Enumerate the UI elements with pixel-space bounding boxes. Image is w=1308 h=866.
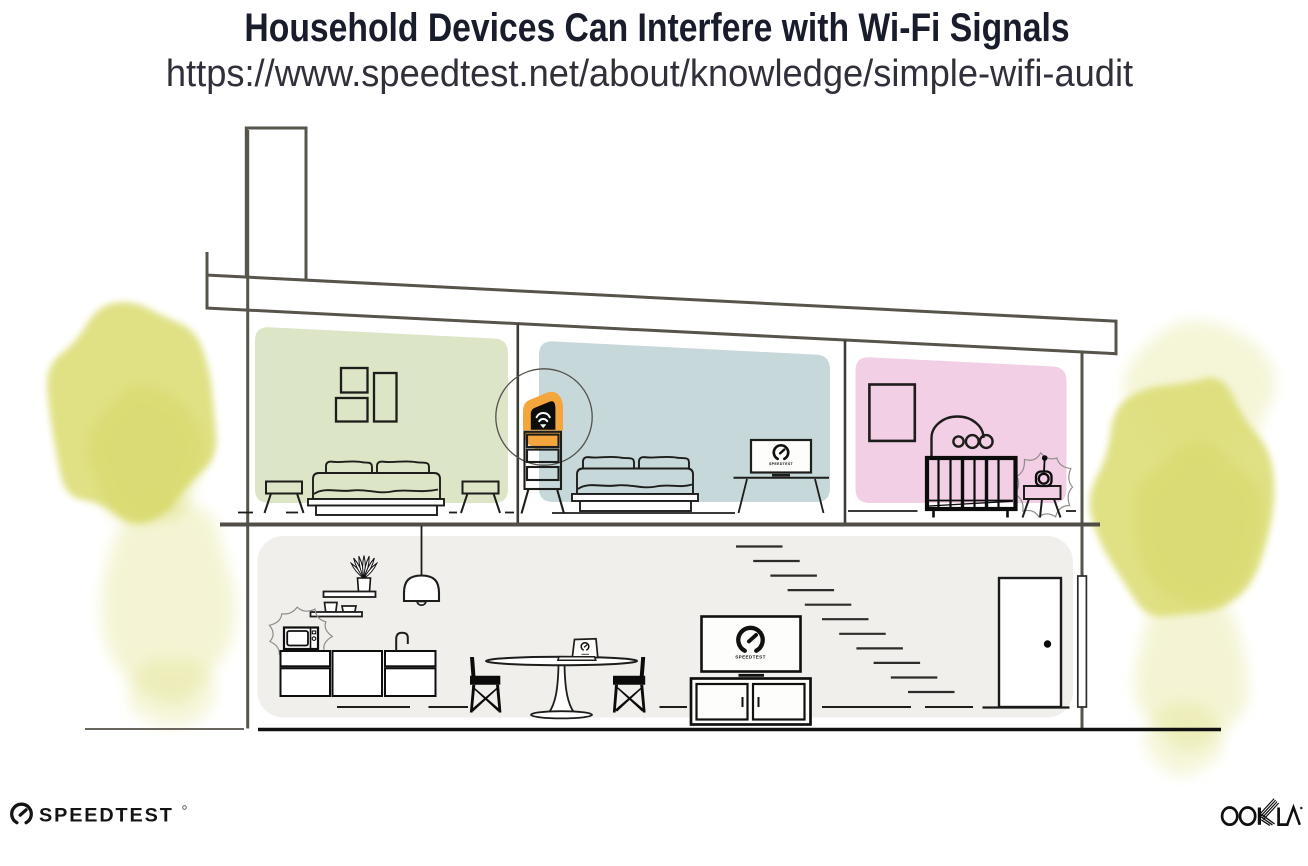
svg-text:SPEEDTEST: SPEEDTEST bbox=[735, 655, 765, 660]
svg-text:https://www.speedtest.net/abou: https://www.speedtest.net/about/knowledg… bbox=[166, 51, 1134, 94]
svg-text:SPEEDTEST: SPEEDTEST bbox=[39, 805, 174, 827]
svg-text:Household Devices Can Interfer: Household Devices Can Interfere with Wi-… bbox=[244, 5, 1069, 49]
svg-text:SPEEDTEST: SPEEDTEST bbox=[769, 462, 794, 466]
